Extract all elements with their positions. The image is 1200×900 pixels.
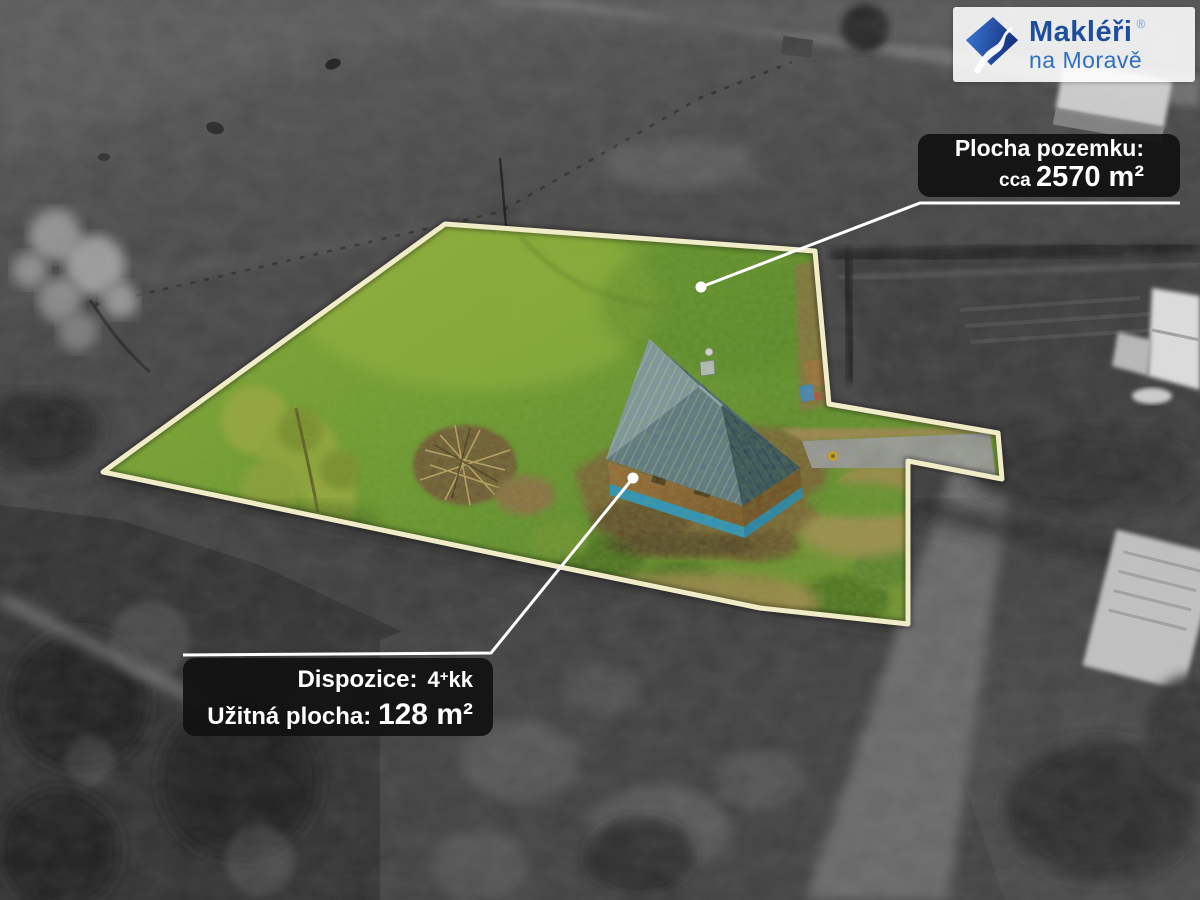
plot-info-label: Plocha pozemku: cca 2570 m²: [918, 134, 1180, 197]
plot-label-title: Plocha pozemku:: [934, 135, 1144, 162]
disposition-plus: +: [440, 668, 449, 685]
brand-line1: Makléři: [1029, 16, 1132, 48]
house-label-line1: Dispozice:4+kk: [197, 660, 473, 697]
plot-marker-dot: [696, 282, 707, 293]
usable-area-label: Užitná plocha:: [207, 703, 371, 730]
brand-line2: na Moravě: [1029, 49, 1145, 72]
house-label-line2: Užitná plocha: 128 m²: [197, 697, 473, 735]
disposition-number: 4: [428, 667, 440, 692]
real-estate-aerial-flyer: Makléři® na Moravě Plocha pozemku: cca 2…: [0, 0, 1200, 900]
usable-area-value: 128 m²: [378, 698, 473, 731]
plot-label-value: cca 2570 m²: [934, 162, 1144, 196]
house-marker-dot: [628, 473, 639, 484]
plot-area-value: 2570 m²: [1036, 161, 1144, 193]
brand-badge: Makléři® na Moravě: [953, 7, 1195, 82]
registered-trademark: ®: [1136, 17, 1145, 31]
river-diamond-icon: [962, 12, 1020, 78]
disposition-rooms: kk: [449, 667, 473, 692]
house-info-label: Dispozice:4+kk Užitná plocha: 128 m²: [183, 658, 493, 736]
brand-name: Makléři® na Moravě: [1029, 18, 1145, 72]
disposition-label: Dispozice:: [297, 666, 417, 693]
plot-value-prefix: cca: [999, 170, 1031, 191]
